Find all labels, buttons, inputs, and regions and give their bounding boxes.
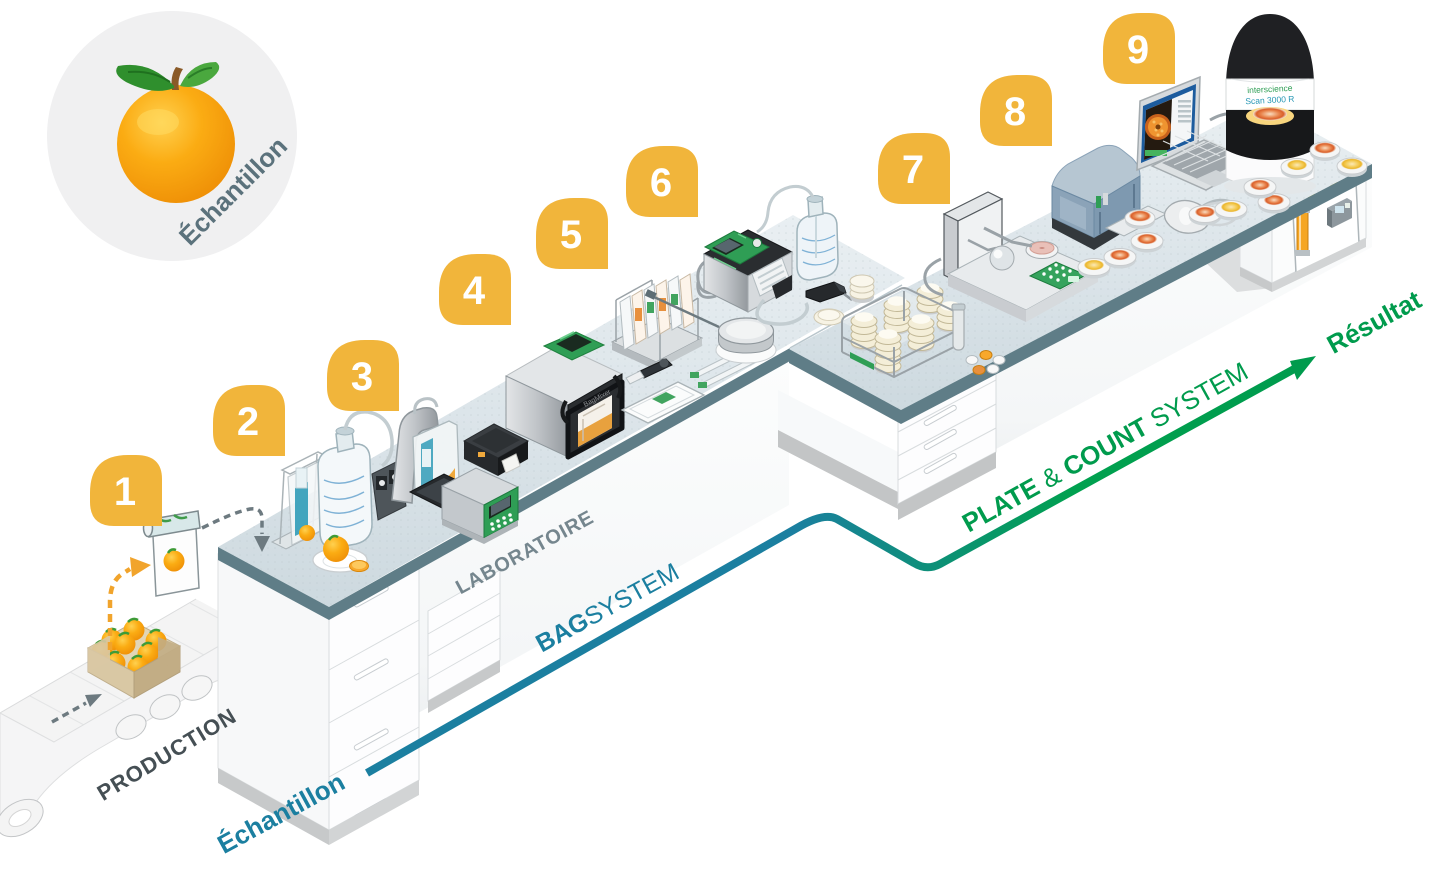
svg-text:8: 8 bbox=[1004, 90, 1026, 134]
svg-text:4: 4 bbox=[463, 269, 486, 313]
svg-text:6: 6 bbox=[650, 161, 672, 205]
svg-text:3: 3 bbox=[351, 355, 373, 399]
svg-text:2: 2 bbox=[237, 400, 259, 444]
svg-text:7: 7 bbox=[902, 148, 924, 192]
svg-text:5: 5 bbox=[560, 213, 582, 257]
svg-text:1: 1 bbox=[114, 470, 136, 514]
svg-text:9: 9 bbox=[1127, 28, 1149, 72]
